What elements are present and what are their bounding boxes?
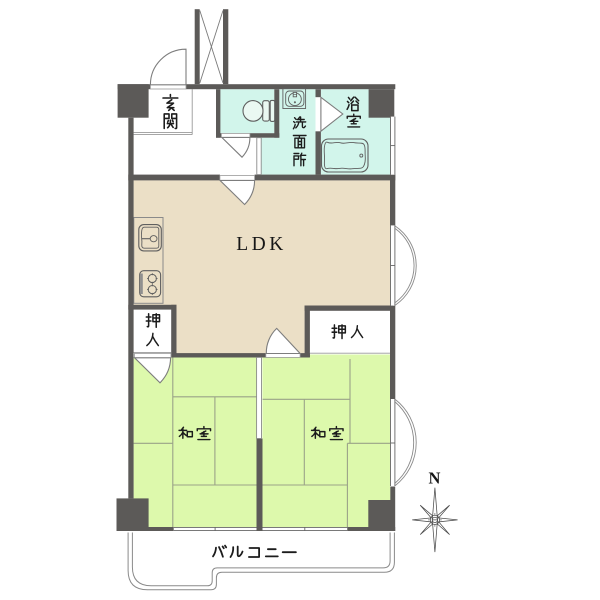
svg-text:LDK: LDK: [236, 234, 287, 255]
svg-text:N: N: [429, 469, 441, 488]
